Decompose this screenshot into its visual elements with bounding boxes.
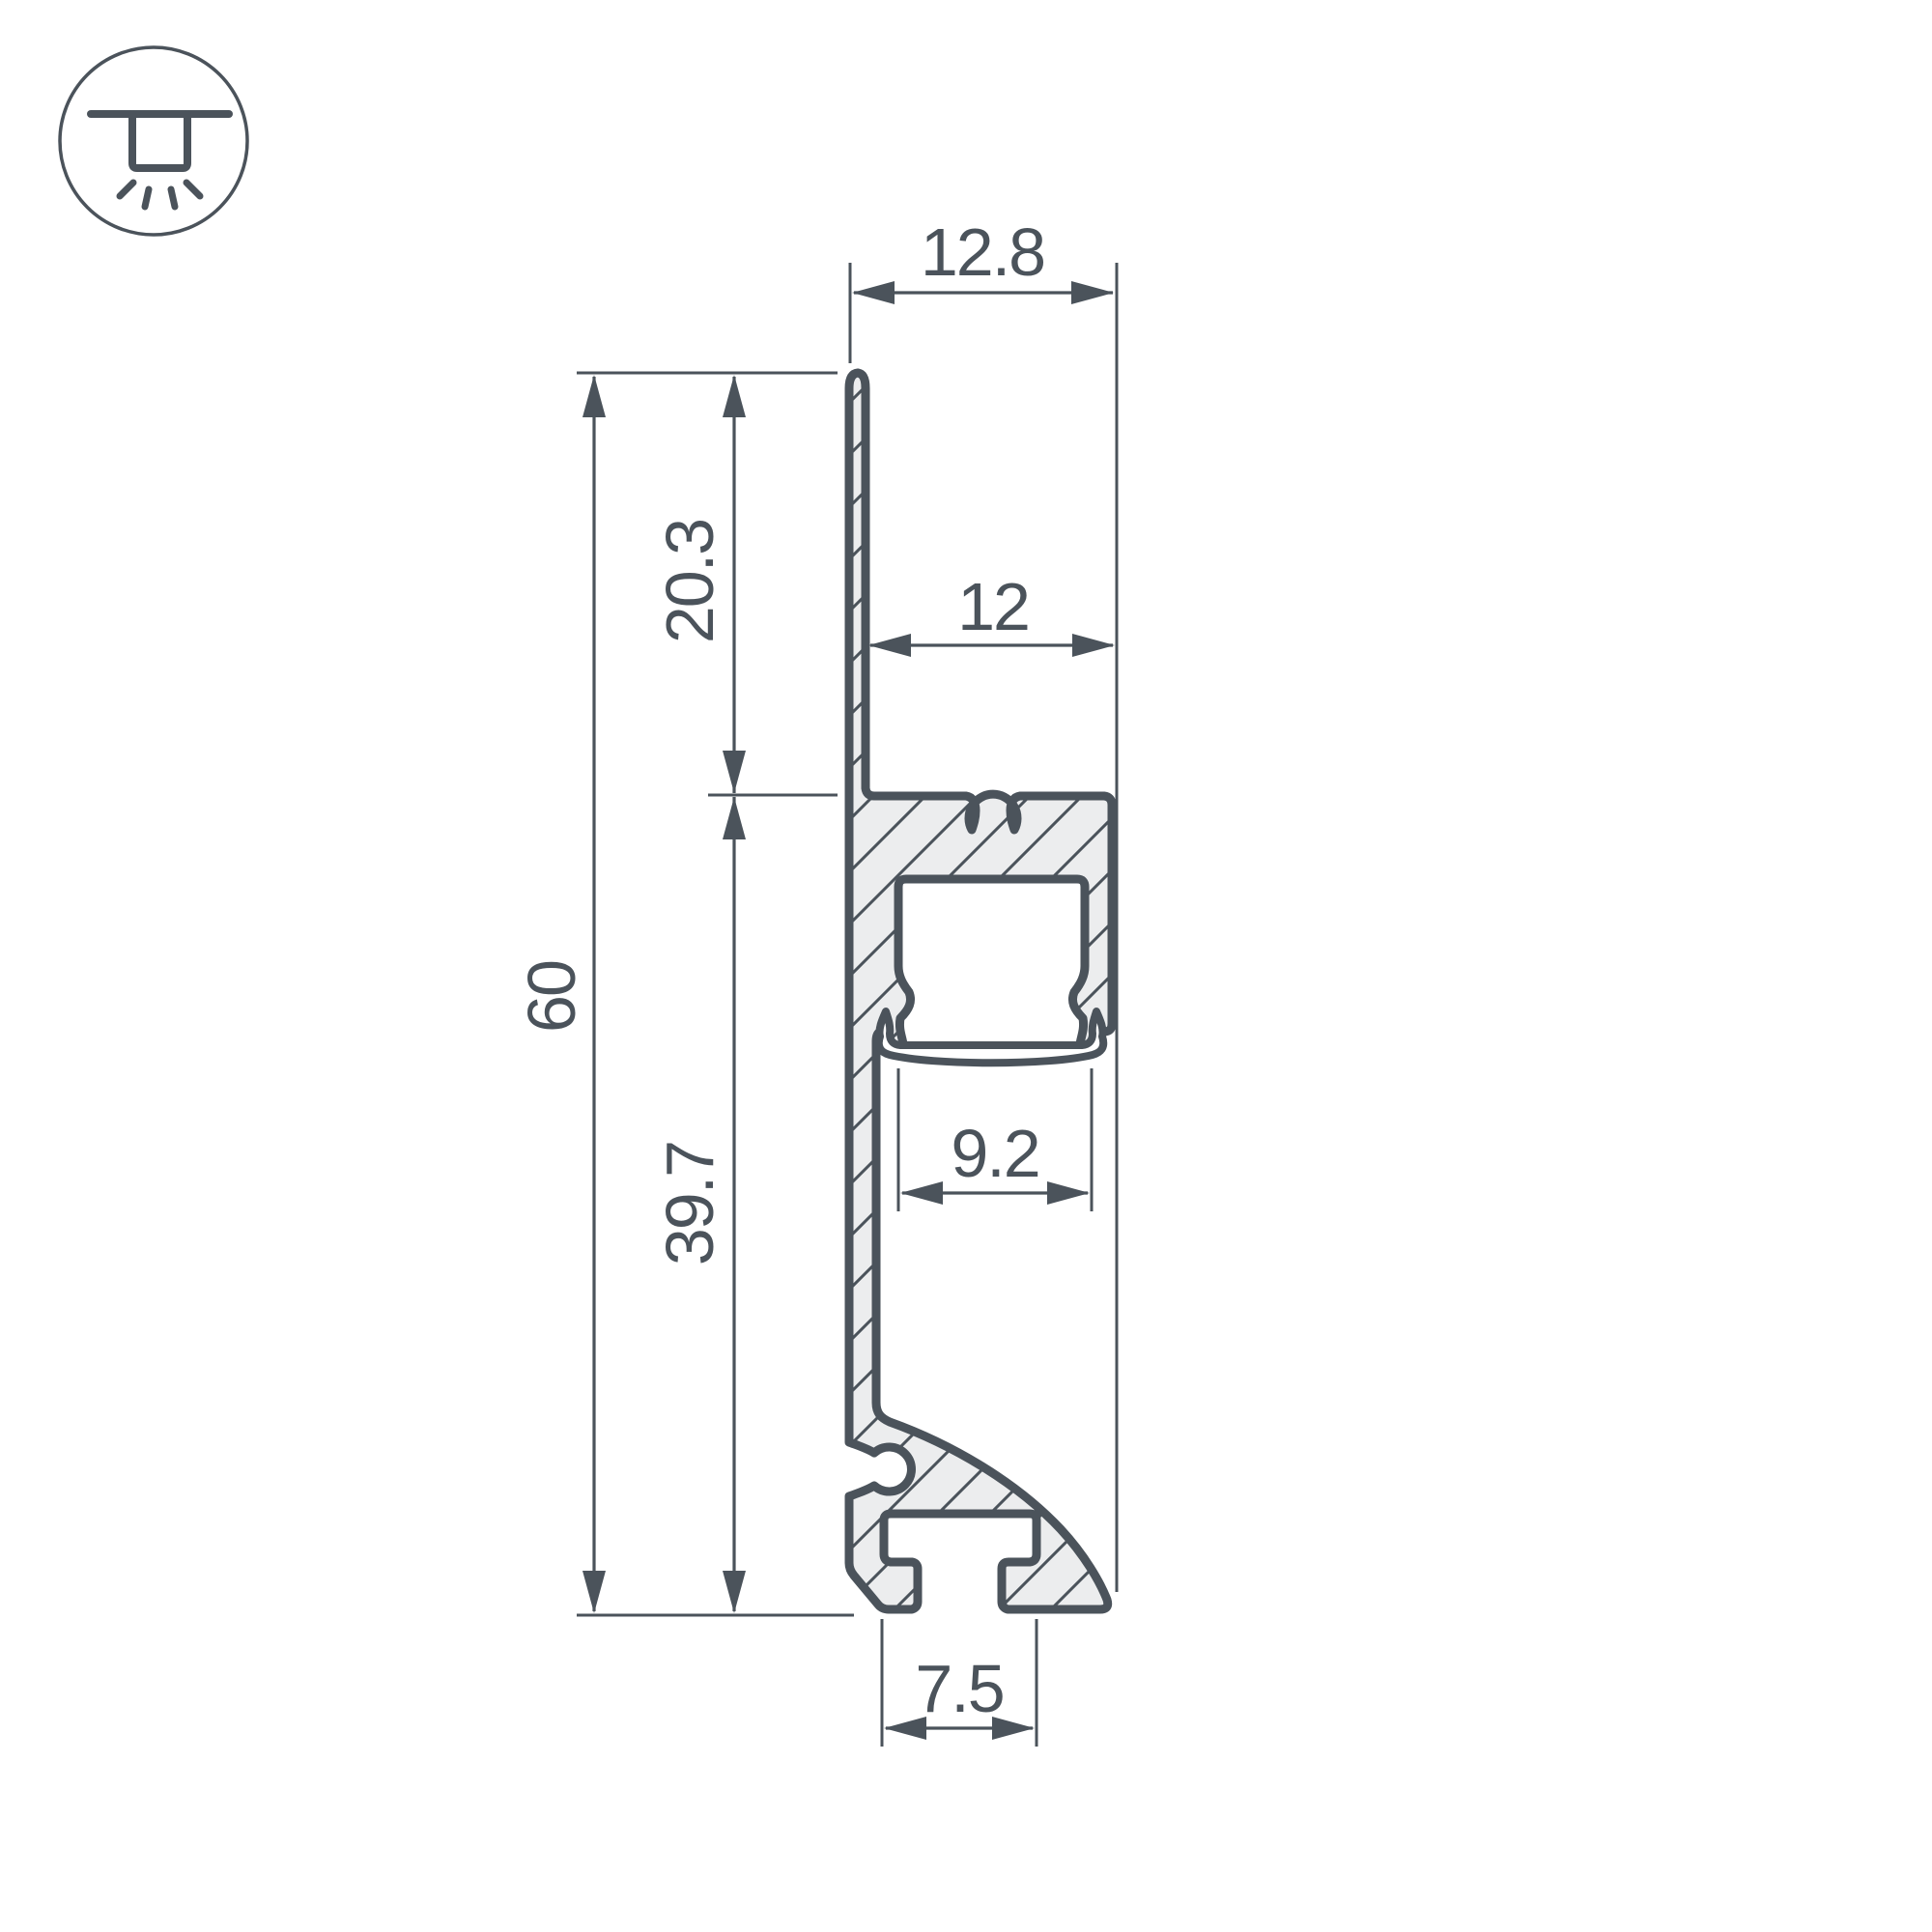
arrow-down-icon <box>723 751 746 793</box>
arrow-left-icon <box>868 634 911 657</box>
arrow-up-icon <box>582 375 606 417</box>
arrow-right-icon <box>1071 281 1114 304</box>
technical-drawing-page: 12.8 12 9.2 7.5 60 20.3 <box>0 0 1932 1932</box>
profile-outline <box>849 373 1112 1609</box>
dim-label-channel-width: 12 <box>957 569 1029 644</box>
arrow-down-icon <box>723 1571 746 1613</box>
arrow-down-icon <box>582 1571 606 1613</box>
dim-label-flange-height: 20.3 <box>652 520 727 643</box>
dim-slot-width: 7.5 <box>882 1619 1037 1747</box>
arrow-up-icon <box>723 375 746 417</box>
dim-total-height: 60 <box>514 375 606 1613</box>
arrow-up-icon <box>723 797 746 839</box>
dim-flange-height: 20.3 <box>652 375 746 793</box>
icon-circle <box>60 47 247 235</box>
dim-label-slot-width: 7.5 <box>915 1651 1003 1726</box>
mount-type-icon <box>60 47 247 235</box>
dim-label-top-width: 12.8 <box>921 214 1044 290</box>
arrow-left-icon <box>900 1181 943 1205</box>
dim-opening-width: 9.2 <box>898 1068 1092 1211</box>
arrow-right-icon <box>1072 634 1115 657</box>
dim-channel-width: 12 <box>868 569 1115 657</box>
diffuser-cover <box>879 1011 1104 1063</box>
profile-cross-section-drawing: 12.8 12 9.2 7.5 60 20.3 <box>0 0 1932 1932</box>
arrow-left-icon <box>852 281 895 304</box>
dim-label-opening-width: 9.2 <box>951 1116 1038 1191</box>
dim-top-width: 12.8 <box>852 214 1114 304</box>
dim-label-body-height: 39.7 <box>652 1142 727 1265</box>
dim-label-total-height: 60 <box>514 961 589 1033</box>
arrow-right-icon <box>1047 1181 1090 1205</box>
dim-body-height: 39.7 <box>652 797 746 1613</box>
